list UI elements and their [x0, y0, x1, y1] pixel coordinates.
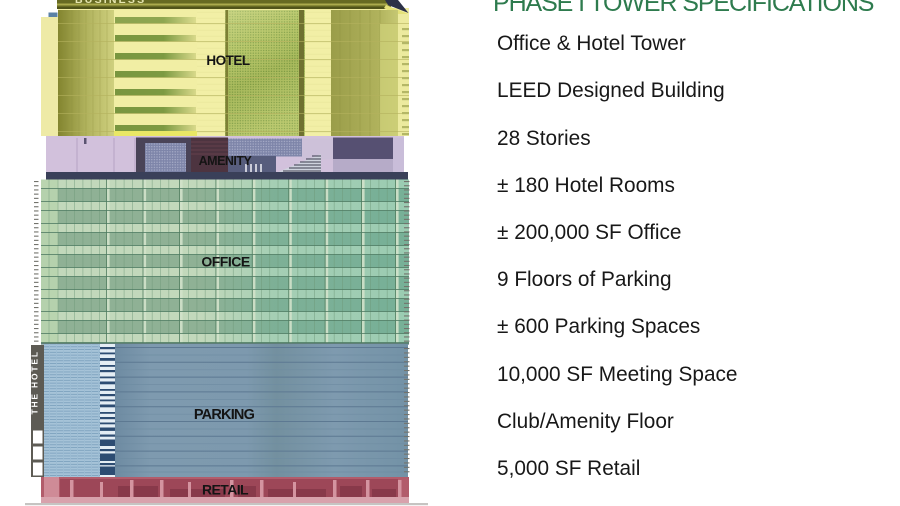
svg-text:BUSINESS: BUSINESS	[75, 0, 146, 6]
svg-text:RETAIL: RETAIL	[202, 482, 249, 498]
svg-text:THE HOTEL: THE HOTEL	[30, 350, 40, 414]
svg-text:HOTEL: HOTEL	[206, 53, 250, 68]
svg-text:AMENITY: AMENITY	[199, 154, 253, 168]
svg-text:PARKING: PARKING	[194, 407, 255, 423]
svg-text:OFFICE: OFFICE	[201, 254, 249, 270]
